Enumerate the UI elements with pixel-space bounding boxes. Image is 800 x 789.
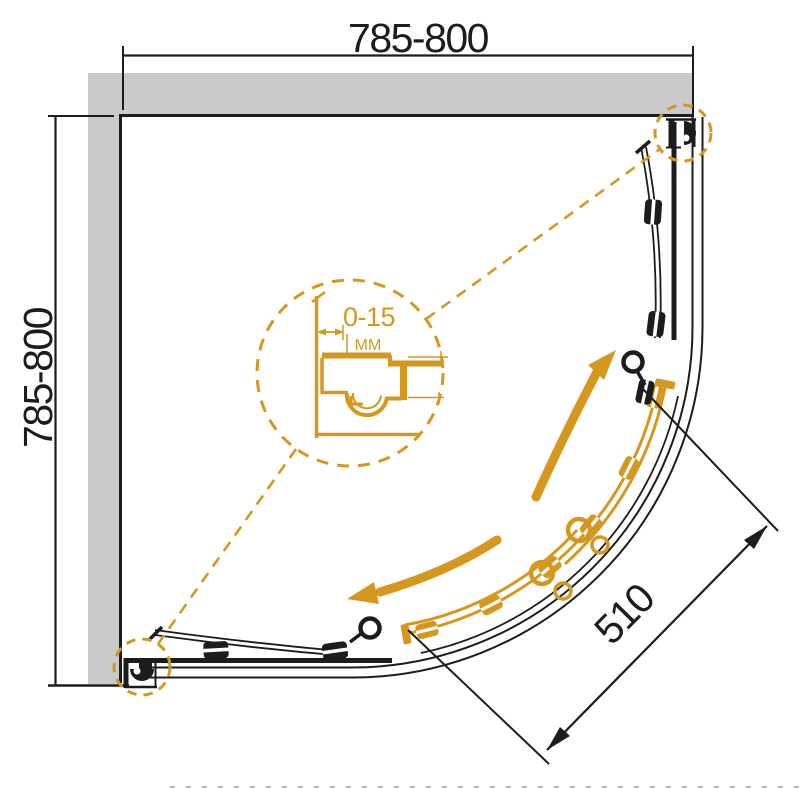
profile-notch — [683, 135, 690, 142]
left-wall — [88, 73, 122, 684]
slide-direction-arrows — [347, 350, 616, 604]
curved-glass-edge — [641, 147, 656, 338]
glass-end-cap — [150, 627, 162, 639]
dimension-label-top: 785-800 — [348, 15, 489, 61]
small-arrowhead — [317, 329, 326, 336]
profile-block — [139, 661, 152, 670]
profile-notch — [134, 668, 141, 675]
arrow-down-head — [347, 582, 379, 604]
top-wall — [88, 73, 693, 114]
arrow-up-shaft — [536, 370, 598, 497]
dimension-diagonal: 510 — [408, 388, 778, 764]
adjustment-range-label: 0-15 — [343, 302, 395, 332]
dimension-label-diagonal: 510 — [585, 575, 663, 653]
outer-frame-arc-inner — [150, 117, 693, 668]
plan-canvas: 785-800 785-800 — [0, 0, 800, 789]
shower-enclosure-plan-drawing: 785-800 785-800 — [0, 0, 800, 789]
adjustment-unit-label: MM — [355, 337, 382, 354]
dimension-label-left: 785-800 — [15, 307, 61, 448]
wall-line-tick — [312, 292, 325, 302]
knob-stem — [350, 633, 362, 642]
curved-glass-edge — [155, 635, 345, 656]
door-knob-black — [361, 619, 380, 638]
arrow-down-shaft — [380, 540, 497, 592]
magnifier-connector-line — [426, 149, 660, 319]
magnifier-connector-line — [158, 449, 296, 644]
glass-end-cap — [636, 141, 650, 153]
extension-line — [642, 388, 778, 531]
extension-line — [408, 630, 549, 764]
door-knob-black — [624, 353, 643, 372]
dimension-line — [547, 526, 767, 750]
curved-glass-edge — [155, 630, 345, 652]
profile-tube-inner — [353, 393, 381, 408]
detail-profile-section: 0-15 MM — [312, 292, 448, 438]
fixed-panel-rollers — [203, 199, 666, 661]
